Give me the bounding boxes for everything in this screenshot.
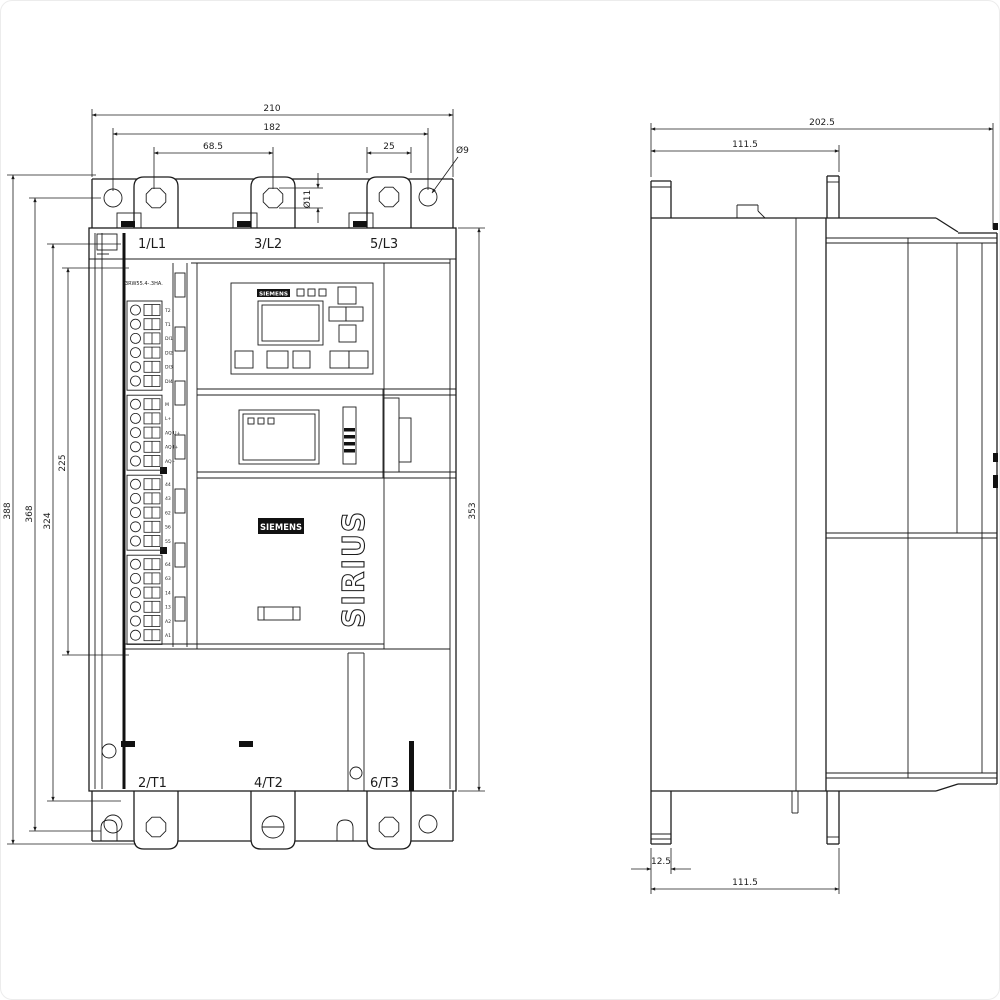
- dim-324: 324: [43, 512, 53, 529]
- spring-terminal: [131, 428, 141, 438]
- terminal-row-label: 44: [165, 482, 171, 488]
- side-tab: [384, 398, 399, 472]
- spring-terminal: [131, 522, 141, 532]
- nav-up-button: [338, 287, 356, 304]
- front-view: 1/L1 3/L2 5/L3 2/T1 4/T2 6/T3: [3, 104, 485, 849]
- spring-terminal: [131, 413, 141, 423]
- hmi-button: [330, 351, 349, 368]
- spring-terminal: [131, 376, 141, 386]
- siemens-boxed-logo-text: SIEMENS: [260, 523, 302, 533]
- keyhole-notch: [337, 820, 353, 841]
- spring-terminal: [131, 616, 141, 626]
- nav-down-button: [339, 325, 356, 342]
- siemens-logo-text: SIEMENS: [259, 292, 288, 298]
- terminal-row-label: M: [165, 402, 169, 408]
- dim-111-5-bottom: 111.5: [732, 878, 758, 888]
- spring-terminal: [131, 479, 141, 489]
- hmi-button: [235, 351, 253, 368]
- bottom-lug-2: [251, 791, 295, 849]
- dim-388: 388: [3, 502, 13, 519]
- terminal-label-6T3: 6/T3: [370, 776, 399, 791]
- terminal-row-label: 63: [165, 576, 171, 582]
- spring-terminal: [131, 305, 141, 315]
- spring-terminal: [131, 399, 141, 409]
- spring-terminal: [131, 559, 141, 569]
- keyhole-notch: [101, 820, 117, 841]
- nav-left-button: [329, 307, 346, 321]
- terminal-row-label: 55: [165, 539, 171, 545]
- terminal-label-4T2: 4/T2: [254, 776, 283, 791]
- spring-terminal: [131, 319, 141, 329]
- dim-dia9: Ø9: [456, 145, 469, 156]
- branding: SIEMENS SIRIUS: [258, 510, 372, 628]
- mounting-hole: [104, 189, 122, 207]
- terminal-row-label: DI1: [165, 336, 173, 342]
- front-hole: [350, 767, 362, 779]
- terminal-row-label: 64: [165, 562, 171, 568]
- spring-terminal: [131, 630, 141, 640]
- bottom-lug-1: [134, 791, 178, 849]
- dim-202-5: 202.5: [809, 118, 835, 128]
- terminal-row-label: 13: [165, 605, 171, 611]
- terminal-row-label: A2: [165, 619, 171, 625]
- terminal-row-label: 56: [165, 525, 171, 531]
- mounting-hole: [104, 815, 122, 833]
- part-number: 3RW55.4-.3HA.: [125, 281, 163, 287]
- terminal-label-2T1: 2/T1: [138, 776, 167, 791]
- terminal-label-5L3: 5/L3: [370, 237, 398, 252]
- terminal-row-label: A1: [165, 633, 171, 639]
- status-led: [297, 289, 304, 296]
- status-led: [319, 289, 326, 296]
- front-dimensions: 210 182 68.5 25 Ø9 Ø11: [3, 104, 485, 844]
- spring-terminal: [131, 493, 141, 503]
- hmi-module: SIEMENS: [231, 283, 373, 374]
- terminal-label-1L1: 1/L1: [138, 237, 166, 252]
- terminal-row-label: 43: [165, 496, 171, 502]
- dim-25: 25: [383, 142, 394, 152]
- terminal-row-label: T2: [164, 308, 171, 314]
- hmi-button: [267, 351, 288, 368]
- hmi-button: [293, 351, 310, 368]
- dim-dia11: Ø11: [302, 190, 313, 209]
- spring-terminal: [131, 536, 141, 546]
- display-module: [197, 389, 456, 478]
- dim-12-5: 12.5: [651, 857, 671, 867]
- dim-225: 225: [58, 454, 68, 471]
- top-lug-3: [367, 177, 411, 228]
- terminal-row-label: AQ I+: [165, 445, 178, 451]
- terminal-row-label: 14: [165, 590, 171, 596]
- side-view: 202.5 111.5 12.5 111.5: [631, 118, 998, 894]
- control-terminal-block: T2T1DI1DI2DI3DI4ML+AQ U+AQ I+AQ -4443625…: [127, 301, 180, 644]
- front-hole: [102, 744, 116, 758]
- terminal-row-label: DI2: [165, 350, 173, 356]
- terminal-row-label: T1: [164, 322, 171, 328]
- spring-terminal: [131, 573, 141, 583]
- dim-353: 353: [468, 502, 478, 519]
- spring-terminal: [131, 442, 141, 452]
- side-outline: [651, 176, 998, 844]
- status-led: [308, 289, 315, 296]
- spring-terminal: [131, 456, 141, 466]
- sirius-logo-text: SIRIUS: [337, 510, 372, 628]
- terminal-row-label: DI3: [165, 365, 173, 371]
- spring-terminal: [131, 362, 141, 372]
- terminal-label-3L2: 3/L2: [254, 237, 282, 252]
- dim-111-5-top: 111.5: [732, 140, 758, 150]
- hmi-button: [349, 351, 368, 368]
- dim-210: 210: [263, 104, 280, 114]
- terminal-row-label: AQ U+: [165, 430, 180, 436]
- spring-terminal: [131, 602, 141, 612]
- soft-starter-dimension-drawing: 1/L1 3/L2 5/L3 2/T1 4/T2 6/T3: [1, 1, 999, 999]
- terminal-row-label: 62: [165, 510, 171, 516]
- spring-terminal: [131, 588, 141, 598]
- mounting-hole: [419, 815, 437, 833]
- spring-terminal: [131, 333, 141, 343]
- spring-terminal: [131, 508, 141, 518]
- mounting-hole: [419, 188, 437, 206]
- nav-right-button: [346, 307, 363, 321]
- dim-68-5: 68.5: [203, 142, 223, 152]
- dim-182: 182: [263, 123, 280, 133]
- spring-terminal: [131, 348, 141, 358]
- dim-368: 368: [25, 505, 35, 522]
- bottom-lug-3: [367, 791, 411, 849]
- terminal-row-label: AQ -: [165, 459, 175, 465]
- terminal-row-label: DI4: [165, 379, 173, 385]
- drawing-canvas: 1/L1 3/L2 5/L3 2/T1 4/T2 6/T3: [0, 0, 1000, 1000]
- terminal-row-label: L+: [165, 416, 172, 422]
